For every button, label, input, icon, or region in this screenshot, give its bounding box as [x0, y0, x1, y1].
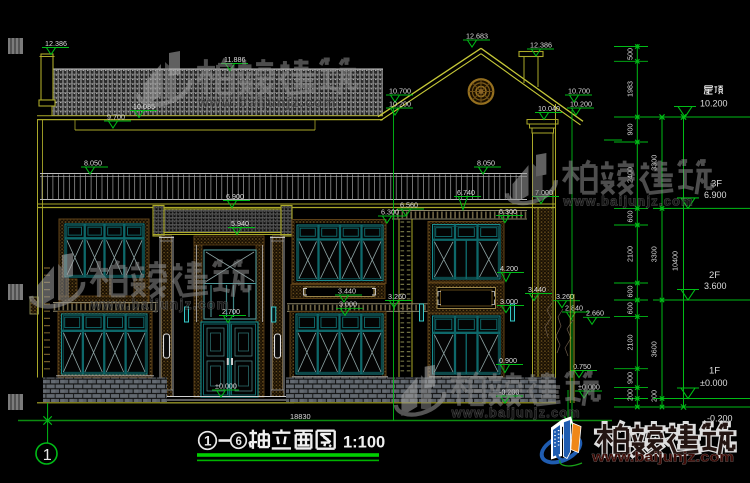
- svg-text:600: 600: [626, 286, 635, 298]
- svg-text:1:100: 1:100: [343, 434, 385, 452]
- svg-text:±0.000: ±0.000: [215, 381, 237, 390]
- svg-text:2100: 2100: [626, 246, 635, 262]
- svg-text:3.440: 3.440: [528, 285, 546, 294]
- svg-text:6.300: 6.300: [381, 207, 399, 216]
- svg-text:3300: 3300: [650, 246, 659, 262]
- svg-text:2F: 2F: [709, 270, 720, 281]
- svg-text:900: 900: [626, 372, 635, 384]
- svg-text:12.386: 12.386: [530, 40, 552, 49]
- svg-text:200: 200: [626, 389, 635, 401]
- svg-text:0.900: 0.900: [499, 356, 517, 365]
- svg-text:2.660: 2.660: [586, 309, 604, 318]
- svg-text:5.940: 5.940: [231, 219, 249, 228]
- svg-text:6.300: 6.300: [499, 207, 517, 216]
- svg-text:1983: 1983: [626, 81, 635, 97]
- svg-text:1: 1: [43, 447, 52, 464]
- svg-text:12.683: 12.683: [466, 31, 488, 40]
- svg-text:www.baijunjz.com: www.baijunjz.com: [591, 450, 734, 465]
- svg-text:3.000: 3.000: [339, 300, 357, 309]
- svg-text:10.200: 10.200: [700, 99, 728, 109]
- svg-text:3600: 3600: [650, 341, 659, 357]
- svg-text:6.900: 6.900: [226, 192, 244, 201]
- svg-text:6.900: 6.900: [704, 190, 727, 200]
- svg-text:900: 900: [626, 124, 635, 136]
- svg-text:3.260: 3.260: [388, 292, 406, 301]
- svg-text:6.740: 6.740: [457, 188, 475, 197]
- svg-text:3.000: 3.000: [500, 297, 518, 306]
- svg-text:8.050: 8.050: [477, 158, 495, 167]
- svg-text:1: 1: [204, 434, 212, 449]
- svg-text:500: 500: [626, 48, 635, 60]
- svg-text:3.600: 3.600: [704, 281, 727, 291]
- svg-text:10.200: 10.200: [389, 99, 411, 108]
- svg-text:1F: 1F: [709, 366, 720, 377]
- svg-text:10.700: 10.700: [389, 86, 411, 95]
- svg-text:2100: 2100: [626, 335, 635, 351]
- svg-text:600: 600: [626, 211, 635, 223]
- svg-text:18830: 18830: [290, 412, 311, 421]
- svg-text:±0.000: ±0.000: [700, 378, 727, 388]
- svg-text:11.886: 11.886: [224, 55, 245, 64]
- svg-text:10.040: 10.040: [538, 104, 560, 113]
- svg-text:6.560: 6.560: [400, 200, 418, 209]
- svg-text:0.750: 0.750: [573, 362, 591, 371]
- svg-text:600: 600: [626, 302, 635, 314]
- svg-text:4.200: 4.200: [500, 264, 518, 273]
- svg-text:10400: 10400: [671, 251, 680, 271]
- svg-text:3.260: 3.260: [556, 292, 574, 301]
- svg-text:12.386: 12.386: [45, 39, 67, 48]
- svg-text:200: 200: [650, 390, 659, 402]
- svg-text:6: 6: [236, 436, 242, 448]
- svg-text:8.050: 8.050: [84, 158, 102, 167]
- svg-text:10.700: 10.700: [568, 86, 590, 95]
- svg-text:9.700: 9.700: [107, 112, 125, 121]
- svg-text:10.200: 10.200: [570, 99, 592, 108]
- svg-text:3.440: 3.440: [338, 286, 356, 295]
